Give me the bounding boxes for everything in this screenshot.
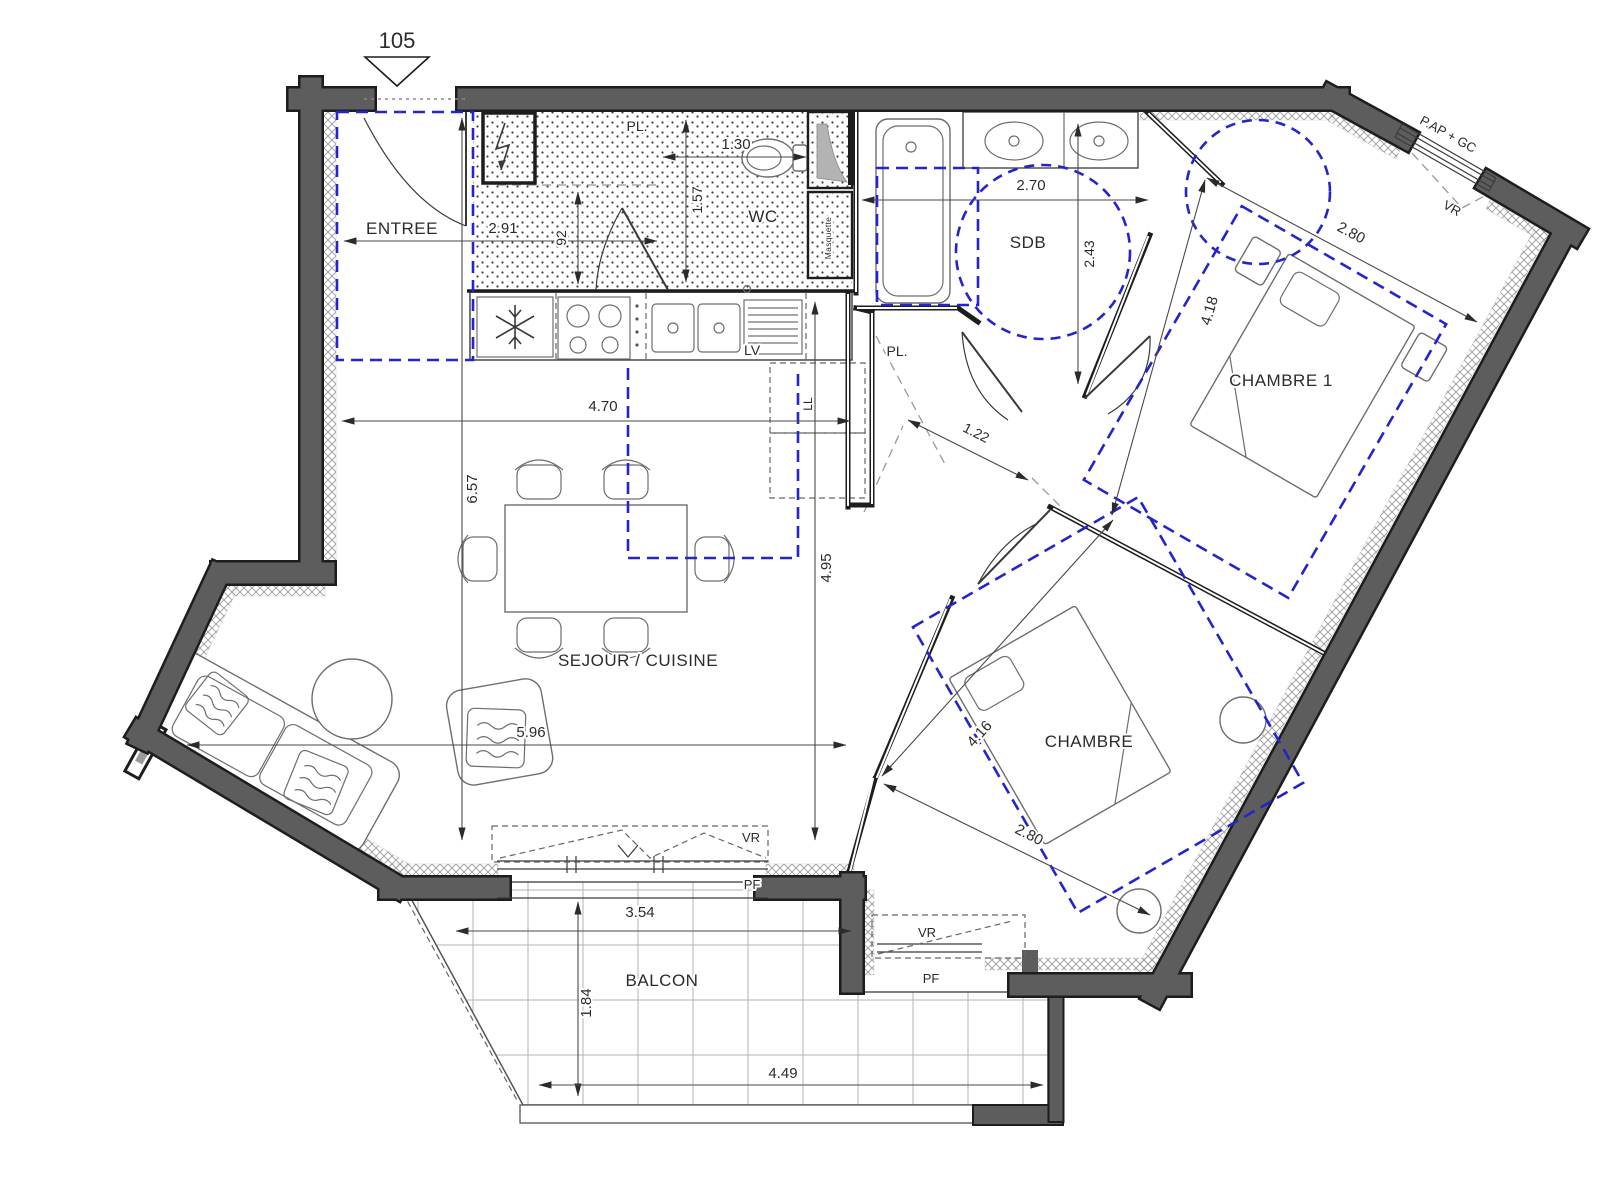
floor-plan-drawing: 105 ENTREE 2.91 92 PL. 1.30 1.57 WC Masq…	[0, 0, 1620, 1182]
dim-sejour-l: 5.96	[516, 724, 545, 741]
shutter-label-chambre: VR	[918, 925, 936, 940]
room-label-chambre: CHAMBRE	[1045, 732, 1134, 751]
dim-hall-w: 1.22	[960, 419, 992, 446]
dim-sejour-h: 6.57	[464, 474, 481, 503]
shutter-label-sejour: VR	[742, 830, 760, 845]
kitchen-counter	[467, 286, 865, 499]
unit-marker: 105	[365, 28, 429, 86]
dishwasher-label: LV	[744, 342, 761, 358]
nightstand-icon	[1117, 889, 1161, 933]
french-window-label-chambre: PF	[923, 971, 940, 986]
dim-sejour-d: 4.95	[818, 553, 835, 582]
double-washbasin-icon	[963, 112, 1138, 168]
dim-balcon-l: 4.49	[768, 1065, 797, 1082]
washer-slot	[770, 363, 865, 498]
duct-label: Masquette	[823, 217, 833, 259]
dim-balcon-w: 3.54	[625, 904, 654, 921]
dim-ch1-w: 2.80	[1334, 219, 1368, 248]
room-label-sdb: SDB	[1010, 233, 1046, 252]
room-label-entree: ENTREE	[366, 219, 438, 238]
french-window-label-sejour: PF	[744, 877, 761, 892]
room-label-wc: WC	[748, 207, 777, 226]
side-table-icon	[312, 659, 392, 739]
dim-wc-d: 1.57	[689, 186, 705, 213]
dim-sdb-w: 2.70	[1016, 177, 1045, 194]
dim-ch1-l: 4.18	[1197, 294, 1221, 327]
dim-sejour-w: 4.70	[588, 398, 617, 415]
entry-floor-tiling	[473, 108, 852, 292]
bathtub-icon	[876, 119, 950, 303]
chambre-window	[872, 915, 1025, 958]
shutter-label-chambre1: VR	[1441, 197, 1464, 219]
dim-entree-d: 92	[553, 230, 569, 246]
dim-sdb-d: 2.43	[1081, 240, 1097, 267]
room-label-balcon: BALCON	[626, 971, 699, 990]
toilet-icon	[742, 139, 807, 177]
dim-balcon-d: 1.84	[578, 988, 595, 1017]
room-label-pl-top: PL.	[626, 118, 647, 134]
dim-wc-w: 1.30	[721, 136, 750, 153]
floor-plan-page: 105 ENTREE 2.91 92 PL. 1.30 1.57 WC Masq…	[0, 0, 1620, 1182]
room-label-sejour: SEJOUR / CUISINE	[558, 651, 718, 670]
room-label-chambre1: CHAMBRE 1	[1229, 371, 1333, 390]
unit-number: 105	[379, 28, 416, 53]
room-label-pl-hall: PL.	[886, 343, 907, 359]
nightstand-icon	[1220, 697, 1266, 743]
washer-label: LL	[801, 397, 815, 411]
dim-entree-w: 2.91	[488, 220, 517, 237]
sejour-window	[492, 826, 768, 898]
bay-window-label: P.AP + GC	[1417, 112, 1479, 155]
